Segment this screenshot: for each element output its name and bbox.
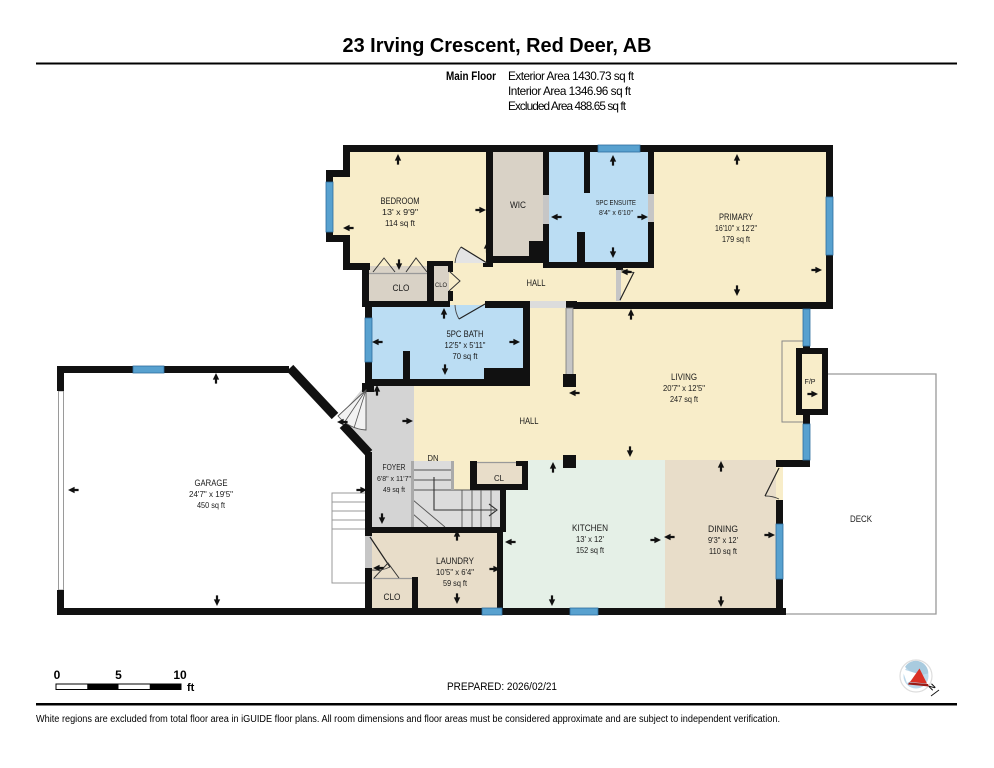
svg-text:16'10" x 12'2": 16'10" x 12'2" (715, 224, 757, 233)
svg-text:110 sq ft: 110 sq ft (709, 547, 738, 556)
svg-text:179 sq ft: 179 sq ft (722, 235, 751, 244)
svg-text:5: 5 (115, 668, 122, 682)
svg-text:FOYER: FOYER (383, 463, 406, 472)
svg-text:Interior Area 1346.96 sq ft: Interior Area 1346.96 sq ft (508, 84, 632, 98)
svg-text:DECK: DECK (850, 514, 873, 524)
svg-text:Main Floor: Main Floor (446, 69, 496, 83)
svg-text:24'7" x 19'5": 24'7" x 19'5" (189, 490, 233, 499)
svg-text:PRIMARY: PRIMARY (719, 212, 753, 222)
svg-text:HALL: HALL (520, 416, 539, 426)
svg-text:49 sq ft: 49 sq ft (383, 485, 405, 494)
svg-text:13' x 9'9": 13' x 9'9" (382, 208, 418, 217)
svg-text:KITCHEN: KITCHEN (572, 523, 608, 533)
svg-text:5PC ENSUITE: 5PC ENSUITE (596, 198, 636, 207)
svg-text:10'5" x 6'4": 10'5" x 6'4" (436, 568, 474, 577)
svg-text:5PC BATH: 5PC BATH (447, 329, 484, 339)
svg-text:450 sq ft: 450 sq ft (197, 501, 226, 510)
svg-text:13' x 12': 13' x 12' (576, 535, 604, 544)
svg-text:12'5" x 5'11": 12'5" x 5'11" (445, 341, 486, 350)
svg-text:59 sq ft: 59 sq ft (443, 579, 468, 588)
svg-text:CLO: CLO (384, 592, 401, 602)
svg-text:CLO: CLO (435, 282, 447, 289)
svg-text:Exterior Area 1430.73 sq ft: Exterior Area 1430.73 sq ft (508, 69, 635, 83)
svg-text:23 Irving Crescent, Red Deer,: 23 Irving Crescent, Red Deer, AB (343, 34, 652, 57)
svg-text:6'8" x 11'7": 6'8" x 11'7" (377, 474, 411, 483)
svg-text:CL: CL (494, 474, 505, 483)
svg-text:GARAGE: GARAGE (195, 478, 228, 488)
svg-text:White regions are excluded fro: White regions are excluded from total fl… (36, 714, 780, 725)
svg-text:8'4" x 6'10": 8'4" x 6'10" (599, 208, 633, 217)
svg-text:BEDROOM: BEDROOM (381, 196, 420, 206)
svg-text:ft: ft (187, 682, 195, 694)
svg-text:LAUNDRY: LAUNDRY (436, 556, 474, 566)
svg-text:CLO: CLO (393, 283, 410, 293)
svg-text:114 sq ft: 114 sq ft (385, 219, 416, 228)
svg-text:70 sq ft: 70 sq ft (453, 352, 479, 361)
svg-text:F/P: F/P (805, 379, 816, 386)
svg-text:HALL: HALL (527, 278, 546, 288)
svg-text:LIVING: LIVING (671, 372, 697, 382)
svg-text:10: 10 (173, 668, 187, 682)
svg-text:247 sq ft: 247 sq ft (670, 395, 699, 404)
svg-text:PREPARED: 2026/02/21: PREPARED: 2026/02/21 (447, 681, 557, 693)
svg-text:DN: DN (428, 454, 439, 463)
svg-text:WIC: WIC (510, 200, 526, 210)
svg-text:9'3" x 12': 9'3" x 12' (708, 536, 738, 545)
svg-text:0: 0 (54, 668, 61, 682)
svg-text:152 sq ft: 152 sq ft (576, 546, 605, 555)
svg-text:DINING: DINING (708, 524, 738, 534)
svg-text:Excluded Area 488.65 sq ft: Excluded Area 488.65 sq ft (508, 99, 627, 113)
svg-text:20'7" x 12'5": 20'7" x 12'5" (663, 384, 705, 393)
